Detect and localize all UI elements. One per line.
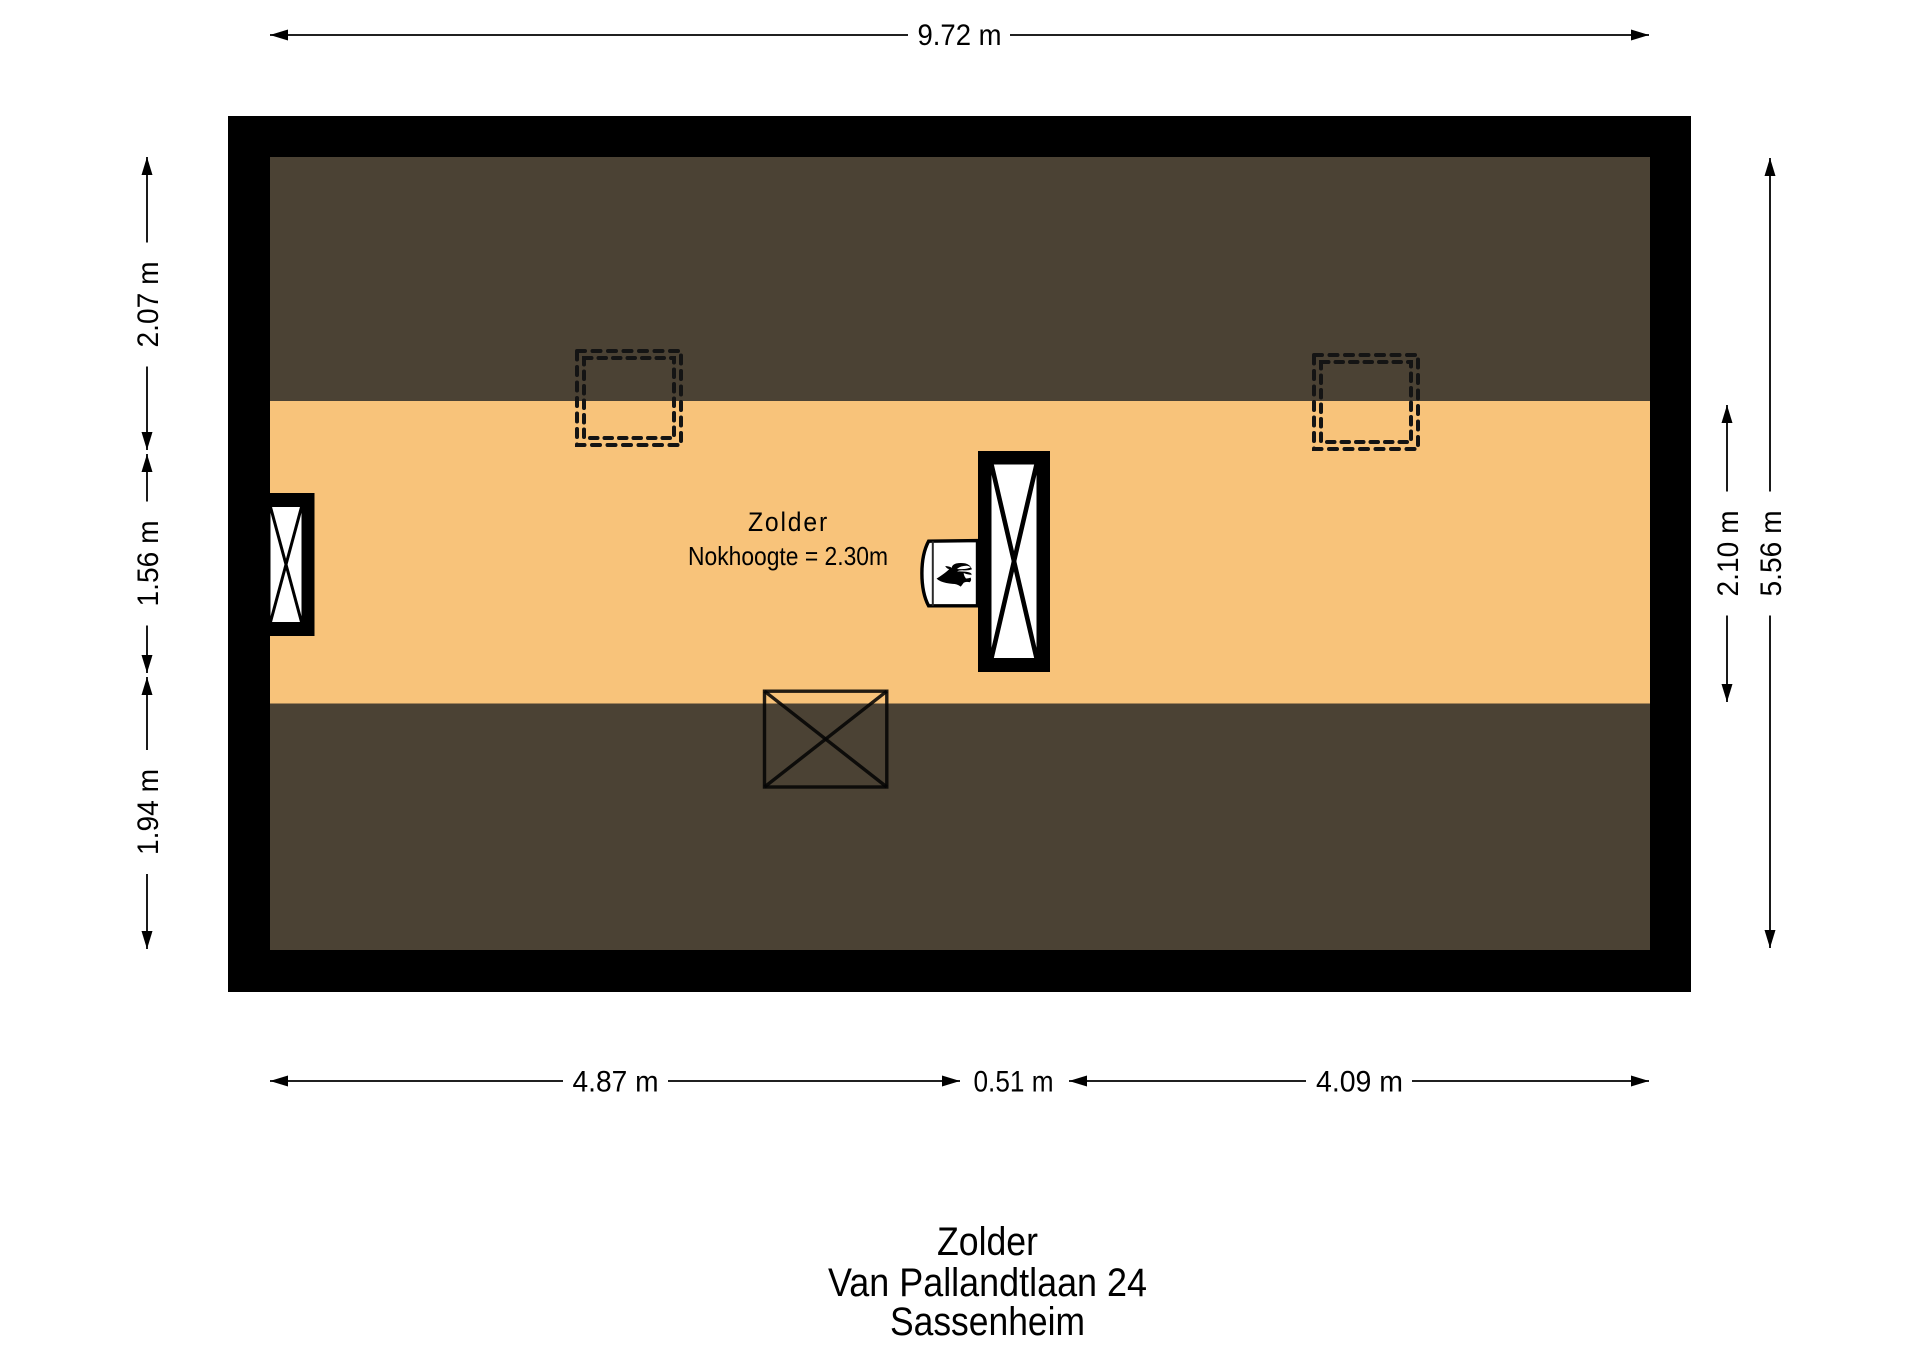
- svg-text:Sassenheim: Sassenheim: [890, 1300, 1085, 1344]
- svg-text:1.56 m: 1.56 m: [132, 521, 165, 607]
- svg-text:Van Pallandtlaan 24: Van Pallandtlaan 24: [828, 1261, 1147, 1305]
- svg-text:4.87 m: 4.87 m: [573, 1066, 659, 1099]
- svg-text:2.10 m: 2.10 m: [1712, 511, 1745, 597]
- svg-text:5.56 m: 5.56 m: [1755, 511, 1788, 597]
- svg-text:Zolder: Zolder: [748, 507, 829, 537]
- svg-text:Nokhoogte = 2.30m: Nokhoogte = 2.30m: [688, 541, 888, 571]
- svg-text:0.51 m: 0.51 m: [974, 1066, 1054, 1099]
- svg-text:9.72 m: 9.72 m: [918, 19, 1002, 52]
- svg-text:Zolder: Zolder: [937, 1220, 1038, 1264]
- svg-text:1.94 m: 1.94 m: [132, 769, 165, 855]
- svg-text:4.09 m: 4.09 m: [1316, 1066, 1403, 1099]
- svg-text:2.07 m: 2.07 m: [132, 262, 165, 348]
